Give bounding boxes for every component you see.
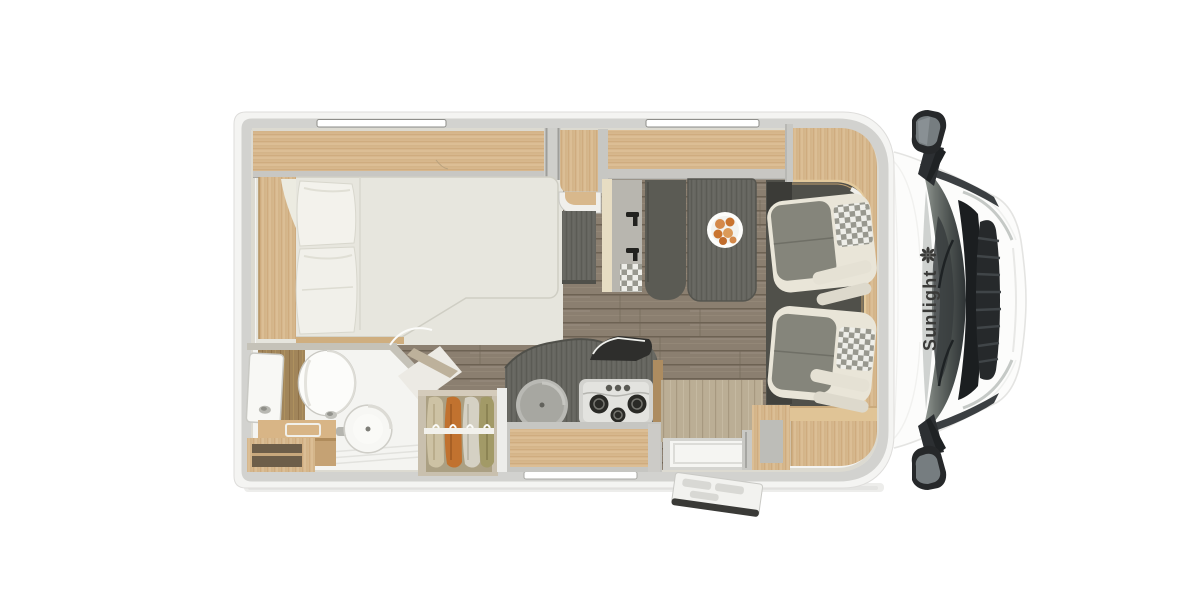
svg-text:Sunlight: Sunlight [920, 269, 940, 351]
